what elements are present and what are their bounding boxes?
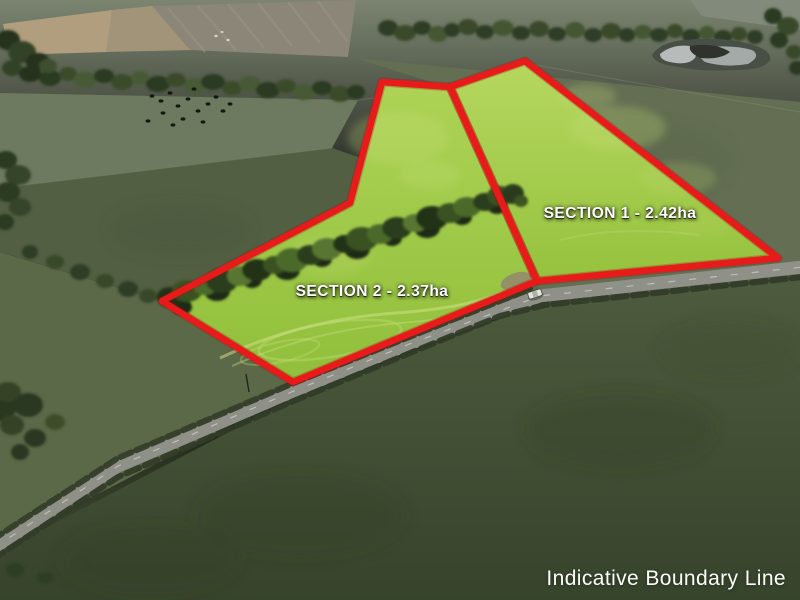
section-1-label: SECTION 1 - 2.42ha — [544, 205, 697, 223]
section-2-label: SECTION 2 - 2.37ha — [296, 283, 449, 301]
boundary-disclaimer: Indicative Boundary Line — [546, 567, 786, 591]
aerial-photo: SECTION 1 - 2.42ha SECTION 2 - 2.37ha In… — [0, 0, 800, 600]
